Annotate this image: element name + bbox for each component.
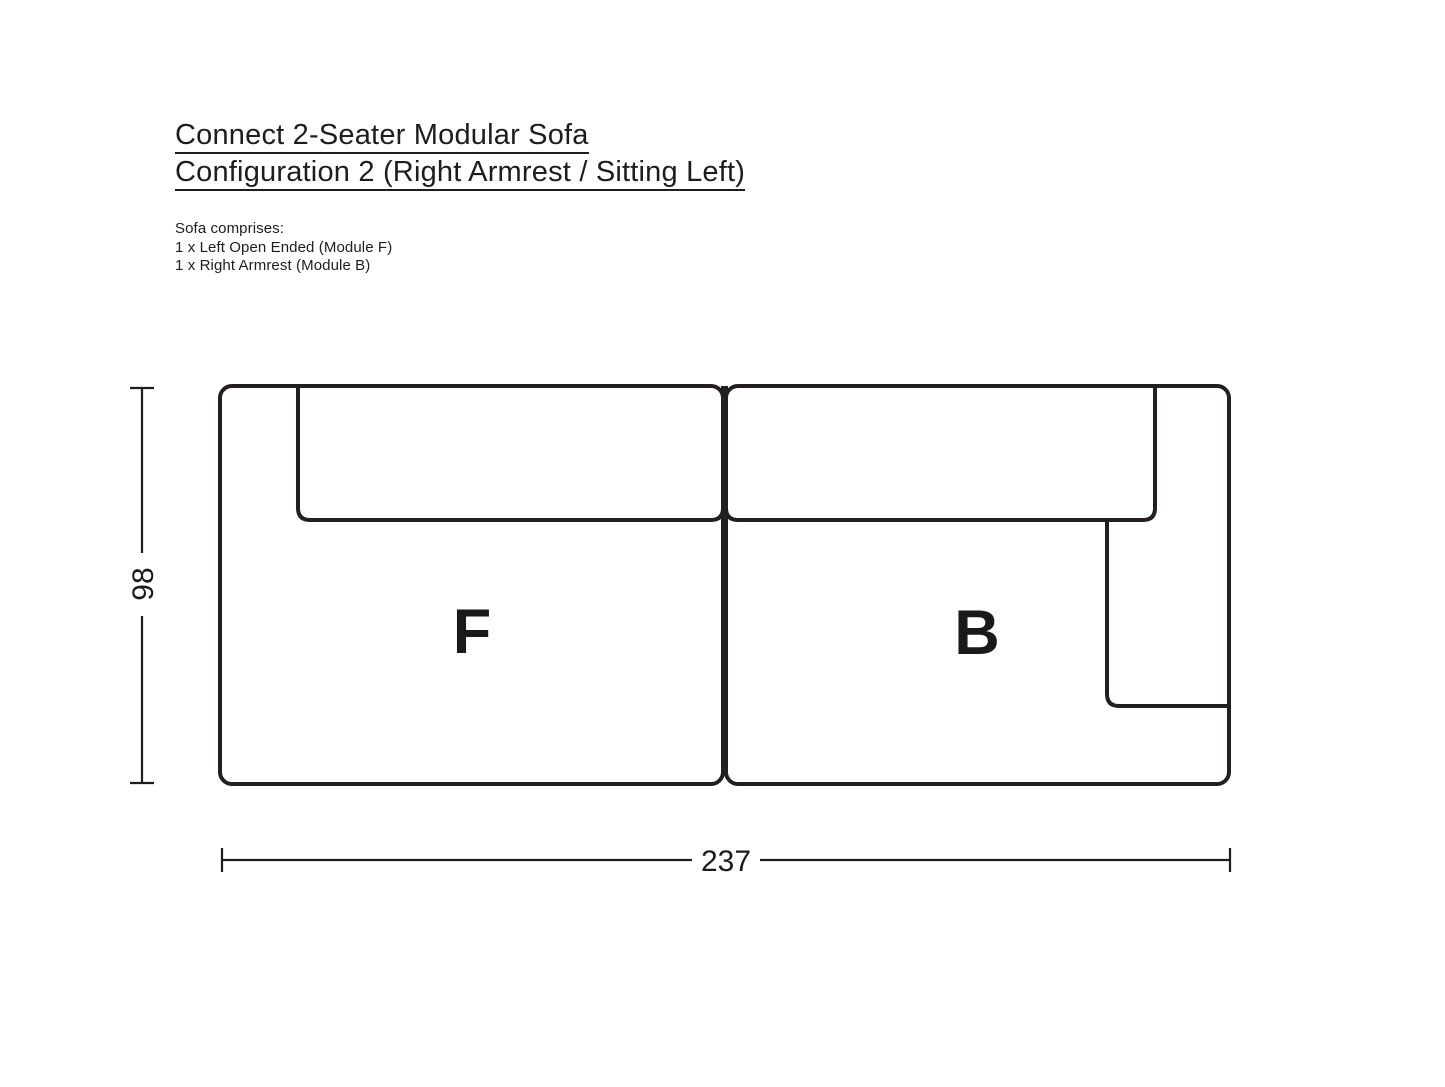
module-b: B	[726, 386, 1229, 784]
module-b-backrest	[726, 386, 1155, 520]
sofa-plan-diagram: F B 98 237	[0, 0, 1445, 1087]
module-f: F	[220, 386, 723, 784]
module-f-backrest	[298, 386, 723, 520]
height-dimension-value: 98	[127, 567, 160, 600]
module-b-label: B	[954, 598, 1000, 668]
module-f-label: F	[453, 597, 491, 667]
height-dimension: 98	[127, 388, 160, 783]
sofa-configuration-sheet: { "header": { "title_line1": "Connect 2-…	[0, 0, 1445, 1087]
width-dimension-value: 237	[701, 845, 751, 878]
module-b-armrest	[1107, 521, 1229, 706]
module-f-outline	[220, 386, 723, 784]
width-dimension: 237	[222, 845, 1230, 878]
